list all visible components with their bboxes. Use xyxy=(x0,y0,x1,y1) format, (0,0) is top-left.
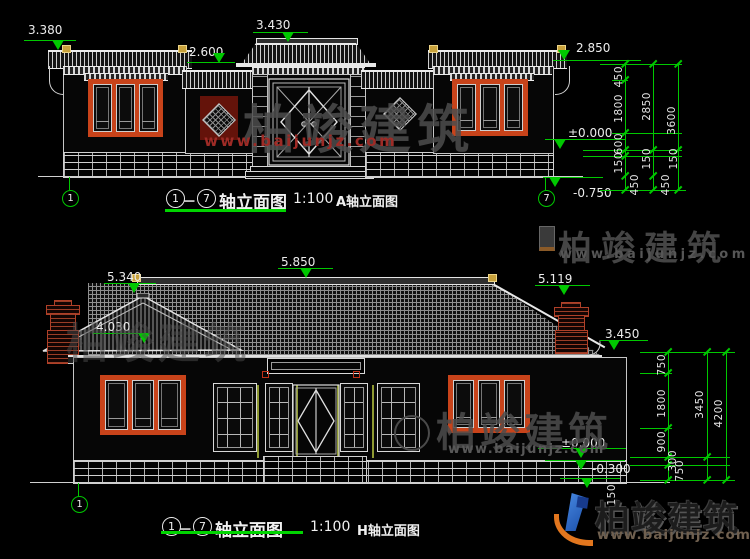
level-marker-icon xyxy=(558,285,570,295)
level-line xyxy=(24,40,76,41)
column-line xyxy=(257,385,259,458)
dim-150: 150 xyxy=(613,152,625,174)
level-marker-icon xyxy=(128,283,140,293)
caption-scale: 1:100 xyxy=(310,519,350,535)
bracket-accent xyxy=(353,371,360,378)
axis-bubble-1: 1 xyxy=(71,496,88,513)
left-brick-base xyxy=(63,152,254,178)
dim-450-top: 450 xyxy=(613,66,625,88)
level-3380: 3.380 xyxy=(28,23,62,37)
watermark-url: www.baijunjz.com xyxy=(560,247,749,262)
gate-step xyxy=(245,171,374,179)
axis-bubble-7: 7 xyxy=(538,190,555,207)
left-connector-roof xyxy=(182,70,255,89)
level-marker-icon xyxy=(575,460,587,470)
dim-4200: 4200 xyxy=(713,399,725,428)
ridge-ornament xyxy=(488,274,497,282)
axis-line xyxy=(78,483,79,496)
level-5119: 5.119 xyxy=(538,272,572,286)
watermark-brand: 柏竣建筑 xyxy=(558,221,730,270)
caption-title: 轴立面图 xyxy=(215,516,283,541)
level-marker-icon xyxy=(300,268,312,278)
left-window xyxy=(100,375,186,435)
dim-450-bottom: 450 xyxy=(660,174,672,196)
axis-line xyxy=(545,177,546,190)
level-zero: ±0.000 xyxy=(568,126,612,140)
level-2850: 2.850 xyxy=(576,41,610,55)
entrance-plaque xyxy=(267,358,365,374)
level-line xyxy=(187,62,235,63)
roof-ridge xyxy=(137,277,495,285)
logo-cube-icon xyxy=(576,496,588,508)
eave-curl xyxy=(49,66,64,95)
level-minus-750: -0.750 xyxy=(573,186,612,200)
bracket-accent xyxy=(262,371,269,378)
level-marker-icon xyxy=(282,32,294,42)
caption-name: A轴立面图 xyxy=(336,191,398,210)
ridge-ornament xyxy=(178,45,187,53)
entrance-steps xyxy=(263,456,367,484)
left-wing-window xyxy=(88,79,163,137)
level-3450: 3.450 xyxy=(605,327,639,341)
level-5340: 5.340 xyxy=(107,270,141,284)
brand-logo-url: www.baijunjz.com xyxy=(597,527,750,543)
dim-3450: 3450 xyxy=(694,390,706,419)
axis-bubble-1: 1 xyxy=(62,190,79,207)
dim-150: 150 xyxy=(668,148,680,170)
lattice-window xyxy=(213,383,257,452)
entrance-door xyxy=(292,384,340,458)
level-marker-icon xyxy=(213,53,225,63)
watermark-url: www.baijunjz.com xyxy=(204,132,397,150)
cad-canvas: 1 7 3.380 3.430 2.600 2.850 ±0.000 -0.75… xyxy=(0,0,750,559)
dim-750-top: 750 xyxy=(656,354,668,376)
caption-underline xyxy=(161,531,303,534)
dim-3600: 3600 xyxy=(666,106,678,135)
caption-dash: － xyxy=(179,519,192,538)
lattice-window xyxy=(265,383,293,452)
caption-underline xyxy=(165,209,286,212)
level-line xyxy=(253,32,308,33)
level-marker-icon xyxy=(608,340,620,350)
ground-line xyxy=(38,176,583,177)
dim-1800: 1800 xyxy=(656,389,668,418)
dim-450-bottom: 450 xyxy=(629,174,641,196)
caption-axis-to: 7 xyxy=(197,189,216,208)
watermark-brand: 柏竣建筑 xyxy=(243,88,475,163)
ridge-ornament xyxy=(429,45,438,53)
eave-curl xyxy=(587,340,604,355)
watermark-logo-icon xyxy=(394,415,430,451)
lattice-window xyxy=(340,383,368,452)
ground-line xyxy=(30,482,670,483)
right-connector-roof xyxy=(361,70,435,89)
level-marker-icon xyxy=(558,50,570,60)
watermark-brand: 柏竣建筑 xyxy=(66,310,250,371)
dim-750-bottom: 750 xyxy=(674,460,686,482)
dim-2850: 2850 xyxy=(641,92,653,121)
dim-1800: 1800 xyxy=(613,94,625,123)
caption-name: H轴立面图 xyxy=(357,520,420,539)
level-marker-icon xyxy=(581,478,593,488)
column-line xyxy=(372,385,374,458)
level-marker-icon xyxy=(52,40,64,50)
level-marker-icon xyxy=(549,177,561,187)
watermark-logo-icon xyxy=(539,226,555,251)
level-5850: 5.850 xyxy=(281,255,315,269)
level-minus-300: -0.300 xyxy=(592,462,631,476)
eave-curl xyxy=(555,66,570,95)
watermark-url: www.baijunjz.com xyxy=(448,442,605,457)
axis-line xyxy=(69,177,70,190)
level-3430: 3.430 xyxy=(256,18,290,32)
caption-dash: － xyxy=(183,191,196,210)
caption-scale: 1:100 xyxy=(293,191,333,207)
level-marker-icon xyxy=(554,139,566,149)
logo-swoosh-icon xyxy=(554,514,593,546)
dim-150: 150 xyxy=(641,148,653,170)
